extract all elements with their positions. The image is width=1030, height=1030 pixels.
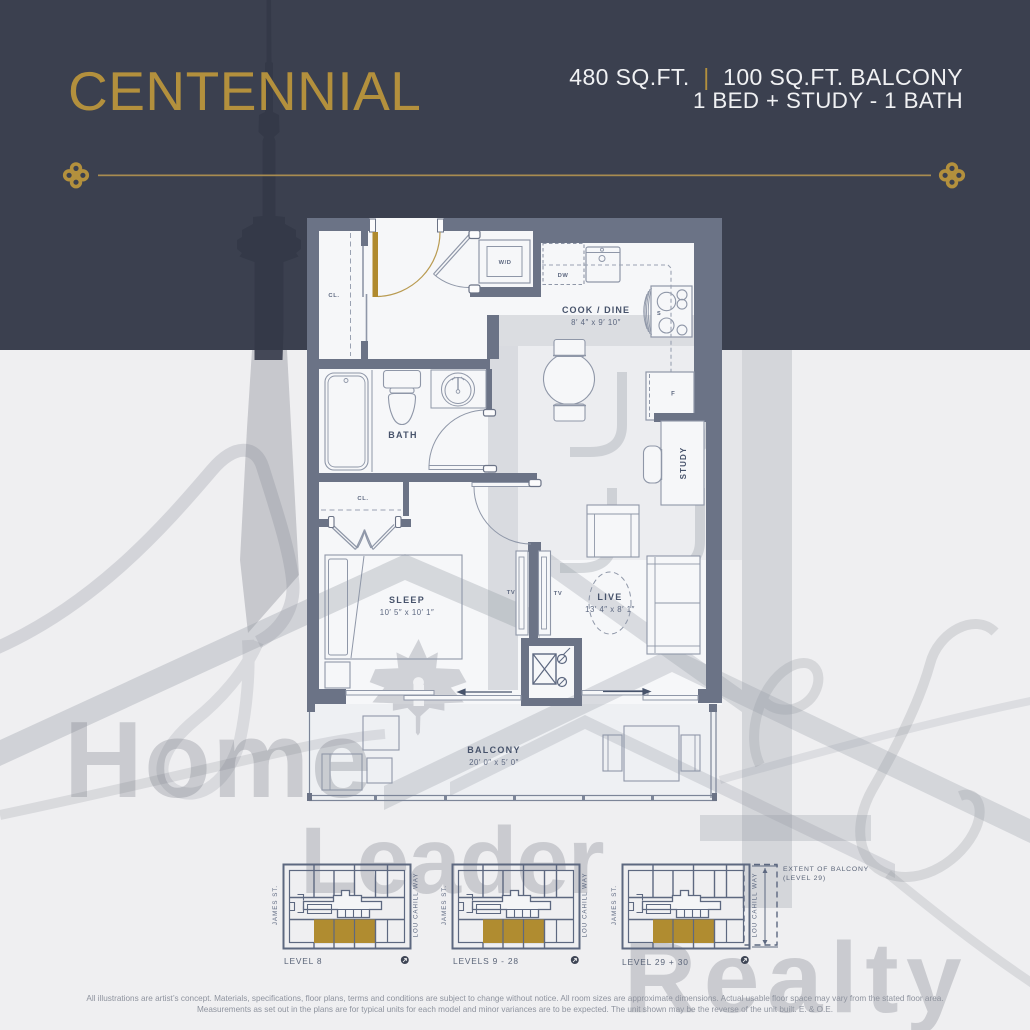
svg-text:8′ 4″ x 9′ 10″: 8′ 4″ x 9′ 10″: [571, 318, 621, 327]
svg-text:CL.: CL.: [328, 293, 339, 299]
svg-text:W/D: W/D: [499, 260, 512, 266]
svg-text:JAMES ST.: JAMES ST.: [611, 885, 618, 925]
svg-text:LEVEL 8: LEVEL 8: [284, 956, 322, 966]
svg-text:Measurements as set out in the: Measurements as set out in the plans are…: [197, 1005, 833, 1014]
svg-text:Home: Home: [64, 699, 373, 821]
svg-text:LOU CAHILL WAY: LOU CAHILL WAY: [582, 873, 589, 938]
svg-text:480 SQ.FT. | 100 SQ.FT. BALC: 480 SQ.FT. | 100 SQ.FT. BALCONY: [569, 64, 963, 90]
svg-text:F: F: [671, 392, 675, 398]
svg-text:20′ 0″ x 5′ 0″: 20′ 0″ x 5′ 0″: [469, 758, 519, 767]
svg-text:JAMES ST.: JAMES ST.: [272, 885, 279, 925]
svg-text:13′ 4″ x 8′ 1″: 13′ 4″ x 8′ 1″: [585, 605, 635, 614]
svg-text:LOU CAHILL WAY: LOU CAHILL WAY: [752, 873, 759, 938]
svg-text:CENTENNIAL: CENTENNIAL: [68, 60, 421, 122]
svg-text:LEVELS 9 - 28: LEVELS 9 - 28: [453, 956, 519, 966]
svg-text:BATH: BATH: [388, 430, 418, 440]
svg-text:SLEEP: SLEEP: [389, 595, 425, 605]
svg-text:LOU CAHILL WAY: LOU CAHILL WAY: [413, 873, 420, 938]
svg-text:(LEVEL 29): (LEVEL 29): [783, 875, 826, 882]
svg-text:JAMES ST.: JAMES ST.: [441, 885, 448, 925]
svg-text:TV: TV: [554, 591, 562, 597]
svg-text:DW: DW: [558, 273, 569, 279]
svg-text:BALCONY: BALCONY: [467, 745, 521, 755]
svg-text:COOK / DINE: COOK / DINE: [562, 305, 630, 315]
svg-text:STUDY: STUDY: [679, 447, 688, 480]
svg-text:LIVE: LIVE: [597, 592, 622, 602]
svg-text:S: S: [657, 311, 661, 317]
svg-text:All illustrations are artist’s: All illustrations are artist’s concept. …: [86, 994, 943, 1003]
svg-text:10′ 5″ x 10′ 1″: 10′ 5″ x 10′ 1″: [380, 608, 435, 617]
svg-text:1 BED + STUDY - 1 BATH: 1 BED + STUDY - 1 BATH: [693, 88, 963, 113]
svg-text:TV: TV: [507, 590, 515, 596]
svg-text:EXTENT OF BALCONY: EXTENT OF BALCONY: [783, 866, 869, 873]
svg-text:LEVEL 29 + 30: LEVEL 29 + 30: [622, 957, 689, 967]
svg-text:CL.: CL.: [357, 496, 368, 502]
